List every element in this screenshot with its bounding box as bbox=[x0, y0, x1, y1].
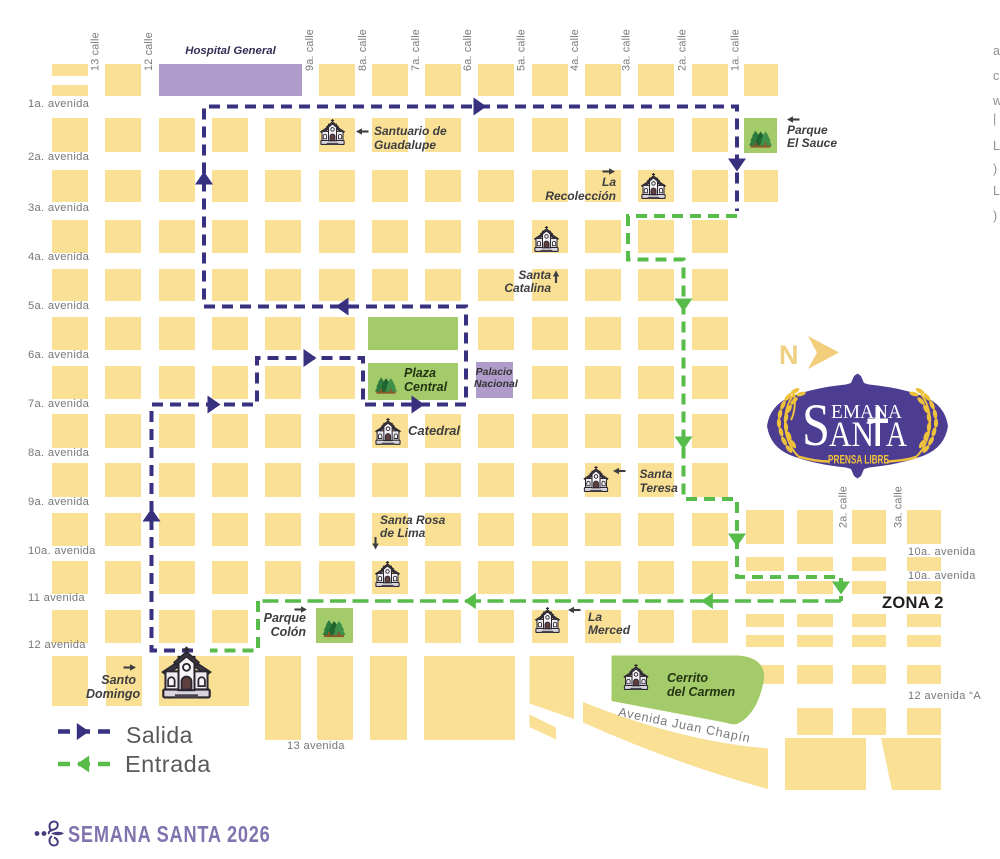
svg-text:2a. calle: 2a. calle bbox=[677, 29, 689, 71]
svg-text:13 calle: 13 calle bbox=[90, 32, 102, 71]
svg-text:9a. calle: 9a. calle bbox=[304, 29, 316, 71]
svg-text:8a. calle: 8a. calle bbox=[357, 29, 369, 71]
svg-text:7a. calle: 7a. calle bbox=[410, 29, 422, 71]
svg-text:5a. calle: 5a. calle bbox=[516, 29, 528, 71]
svg-text:3a. calle: 3a. calle bbox=[893, 486, 905, 528]
svg-text:2a. calle: 2a. calle bbox=[838, 486, 850, 528]
svg-text:1a. calle: 1a. calle bbox=[730, 29, 742, 71]
svg-text:4a. calle: 4a. calle bbox=[569, 29, 581, 71]
svg-text:3a. calle: 3a. calle bbox=[621, 29, 633, 71]
svg-text:6a. calle: 6a. calle bbox=[462, 29, 474, 71]
svg-text:12 calle: 12 calle bbox=[143, 32, 155, 71]
